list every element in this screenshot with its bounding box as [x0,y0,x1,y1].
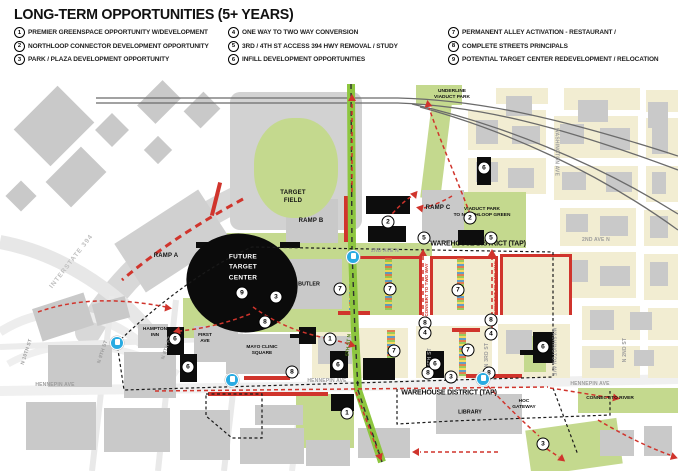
label-hampton-inn: HAMPTON INN [143,327,167,339]
label-n-10th-st: N 10TH ST [20,338,34,366]
red-street-segment [208,392,328,396]
building [144,136,172,164]
map-marker-3: 3 [537,438,550,451]
building [652,128,668,154]
label-washington-ave-n: WASHINGTON AVE [553,128,560,176]
label-convert-two-way-2: CONVERT TO TWO WAY [493,261,499,314]
label-ramp-c: RAMP C [426,205,451,213]
building [26,402,96,450]
city-block [648,308,678,340]
map-marker-1: 1 [324,333,337,346]
building [644,426,672,456]
map-marker-3: 3 [270,291,283,304]
map-marker-8: 8 [259,316,272,329]
building [476,120,498,144]
building [5,180,36,211]
label-hennepin-ave-west: HENNEPIN AVE [35,382,74,389]
map-marker-7: 7 [384,283,397,296]
skyway [520,350,533,355]
label-2nd-ave-n-west: 2ND AVE N [371,248,399,255]
label-underline-viaduct-park: UNDERLINE VIADUCT PARK [434,89,470,101]
building [95,113,129,147]
map-marker-8: 8 [485,314,498,327]
label-target-field: TARGET FIELD [280,190,305,206]
label-hennepin-ave-east: HENNEPIN AVE [570,381,609,388]
warehouse-block [500,254,572,315]
infill-building [299,327,316,344]
bus-glyph [115,339,120,345]
red-street-segment [244,376,290,380]
label-first-ave: FIRST AVE [198,333,212,345]
map-marker-7: 7 [462,344,475,357]
transit-stop-icon [110,336,124,350]
building [566,214,588,232]
building [506,96,532,116]
skyway [280,242,300,248]
building [600,128,630,150]
building [600,216,628,236]
bus-glyph [230,376,235,382]
label-library: LIBRARY [458,409,482,416]
building [652,172,666,194]
map-marker-1: 1 [341,407,354,420]
building [650,262,668,286]
map-marker-2: 2 [382,216,395,229]
red-street-segment [452,328,480,332]
warehouse-block [430,256,498,315]
building [240,428,304,464]
label-warehouse-district-north: WAREHOUSE DISTRICT (TAP) [430,239,525,248]
building [137,80,181,124]
building [590,350,614,368]
map-marker-5: 5 [418,232,431,245]
infill-building [363,358,395,380]
label-ramp-a: RAMP A [154,253,179,261]
greenspace [420,102,452,200]
building [508,168,534,188]
building [255,405,303,425]
map-marker-4: 4 [419,327,432,340]
map-canvas: INTERSTATE 394RAMP ARAMP BRAMP CTARGET F… [0,0,678,471]
label-warehouse-district-south: WAREHOUSE DISTRICT (TAP) [401,388,496,397]
building [600,430,634,456]
building [650,216,668,238]
transit-stop-icon [346,250,360,264]
building [92,296,131,326]
label-future-target-center: FUTURE TARGET CENTER [229,252,258,283]
red-street-segment [338,311,370,315]
bus-glyph [481,375,486,381]
building [180,410,230,460]
building [562,172,586,190]
bus-glyph [351,253,356,259]
map-marker-9: 9 [236,287,249,300]
label-hennepin-ave-center: HENNEPIN AVE [307,378,346,385]
map-marker-4: 4 [485,328,498,341]
building [32,292,94,341]
map-marker-6: 6 [182,361,195,374]
building [306,440,350,466]
label-ramp-b: RAMP B [299,218,324,226]
building [578,100,608,122]
building [124,352,176,398]
map-marker-7: 7 [334,283,347,296]
label-viaduct-park-northloop: VIADUCT PARK TO NORTHLOOP GREEN [454,207,511,219]
long-term-opportunities-map: LONG-TERM OPPORTUNITIES (5+ YEARS) 1 PRE… [0,0,678,471]
building [606,172,632,192]
skyway [290,334,299,338]
label-n-3rd-st: N 3RD ST [484,343,491,367]
map-marker-8: 8 [286,366,299,379]
building [184,92,221,129]
map-marker-7: 7 [452,284,465,297]
map-marker-6: 6 [169,333,182,346]
map-marker-2: 2 [464,212,477,225]
building [358,428,410,458]
building [600,266,630,286]
building [560,124,584,144]
building [512,126,540,144]
map-marker-3: 3 [445,371,458,384]
label-butler: BUTLER [298,281,320,288]
building [630,312,652,330]
map-marker-6: 6 [429,358,442,371]
building [104,408,170,452]
label-mayo-clinic-square: MAYO CLINIC SQUARE [246,345,277,357]
infill-building [366,196,410,214]
label-washington-ave-s: WASHINGTON AVE [550,328,557,376]
red-street-segment [344,196,348,242]
map-marker-6: 6 [478,162,491,175]
building [590,310,614,330]
label-n-2nd-st: N 2ND ST [622,338,629,362]
map-marker-5: 5 [485,232,498,245]
building [648,102,668,128]
map-marker-6: 6 [332,359,345,372]
transit-stop-icon [225,373,239,387]
label-hoc-gateway: HOC GATEWAY [512,399,535,411]
red-street-segment [210,182,222,216]
label-connect-to-river: CONNECT TO RIVER [586,396,634,402]
label-convert-two-way-1: CONVERT TO TWO WAY [424,263,430,316]
map-marker-7: 7 [388,345,401,358]
activated-alley [349,262,355,310]
map-marker-6: 6 [537,341,550,354]
label-2nd-ave-n-east: 2ND AVE N [582,237,610,244]
label-interstate-394: INTERSTATE 394 [48,233,96,291]
building [634,350,654,366]
transit-stop-icon [476,372,490,386]
